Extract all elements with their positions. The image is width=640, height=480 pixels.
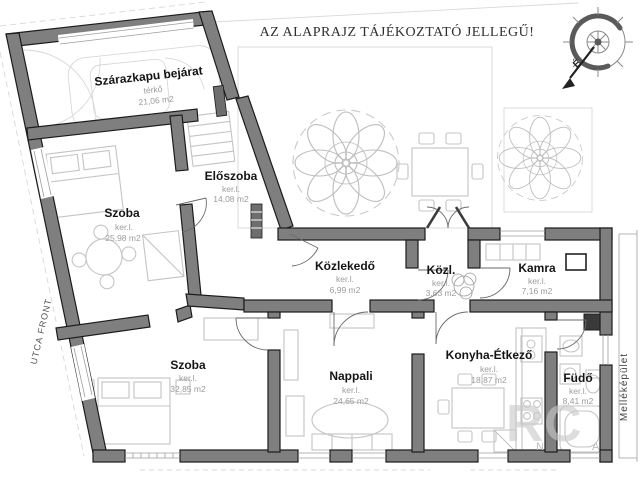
street-front-label: UTCA FRONT — [29, 297, 54, 365]
svg-text:ker.l.: ker.l. — [569, 386, 587, 396]
svg-text:Füdő: Füdő — [563, 371, 592, 385]
svg-text:Nappali: Nappali — [329, 369, 372, 383]
svg-text:8,41 m2: 8,41 m2 — [563, 396, 594, 406]
svg-text:Szoba: Szoba — [170, 358, 206, 372]
compass-rose — [562, 7, 633, 89]
svg-text:ker.l.: ker.l. — [115, 222, 133, 232]
room-label-kamra: Kamra ker.l. 7,16 m2 — [518, 261, 556, 296]
room-label-szarazkapu: Szárazkapu bejárat térkő 21,06 m2 — [94, 63, 206, 111]
svg-text:25,98 m2: 25,98 m2 — [105, 233, 141, 243]
tree-icon — [498, 116, 583, 201]
tree-icon — [293, 110, 399, 216]
bedroom2-furniture — [80, 318, 258, 444]
svg-text:Konyha-Étkező: Konyha-Étkező — [446, 347, 533, 362]
svg-text:Előszoba: Előszoba — [205, 169, 258, 183]
watermark-letter: A — [592, 441, 600, 453]
room-label-eloszoba: Előszoba ker.l. 14,08 m2 — [205, 169, 258, 204]
svg-text:Kamra: Kamra — [518, 261, 556, 275]
garden-dining-table — [397, 133, 483, 211]
svg-text:ker.l.: ker.l. — [336, 274, 354, 284]
plan-disclaimer-title: AZ ALAPRAJZ TÁJÉKOZTATÓ JELLEGŰ! — [260, 23, 535, 40]
svg-text:7,16 m2: 7,16 m2 — [522, 286, 553, 296]
svg-text:3,63 m2: 3,63 m2 — [426, 288, 457, 298]
pantry-shelf — [486, 244, 540, 260]
svg-text:18,87 m2: 18,87 m2 — [471, 375, 507, 385]
shaft-box — [566, 254, 586, 270]
svg-text:ker.l.: ker.l. — [342, 385, 360, 395]
chimney — [584, 314, 600, 330]
outbuilding-outline — [619, 230, 637, 462]
svg-text:Közl.: Közl. — [427, 263, 456, 277]
room-label-szoba2: Szoba ker.l. 32,85 m2 — [170, 358, 206, 394]
svg-text:14,08 m2: 14,08 m2 — [213, 194, 249, 204]
watermark-letter: N — [536, 441, 544, 453]
svg-text:ker.l.: ker.l. — [179, 373, 197, 383]
floor-plan-page: R C N A É AZ ALAPRAJZ TÁJÉKOZTATÓ JELLEG… — [0, 0, 640, 480]
room-label-szoba1: Szoba ker.l. 25,98 m2 — [104, 206, 141, 243]
svg-text:32,85 m2: 32,85 m2 — [170, 384, 206, 394]
svg-text:ker.l.: ker.l. — [222, 184, 240, 194]
svg-text:ker.l.: ker.l. — [480, 364, 498, 374]
floor-plan-svg: R C N A É AZ ALAPRAJZ TÁJÉKOZTATÓ JELLEG… — [0, 0, 640, 480]
svg-text:Szoba: Szoba — [104, 206, 140, 220]
svg-text:Közlekedő: Közlekedő — [315, 259, 375, 273]
room-label-nappali: Nappali ker.l. 24,65 m2 — [329, 369, 372, 406]
svg-text:ker.l.: ker.l. — [528, 276, 546, 286]
svg-text:6,99 m2: 6,99 m2 — [330, 285, 361, 295]
svg-text:24,65 m2: 24,65 m2 — [333, 396, 369, 406]
room-label-kozlekedo: Közlekedő ker.l. 6,99 m2 — [315, 259, 375, 295]
svg-text:térkő: térkő — [143, 84, 163, 96]
svg-text:ker.l.: ker.l. — [432, 278, 450, 288]
outbuilding-label: Melléképület — [619, 353, 630, 421]
room-label-fudo: Füdő ker.l. 8,41 m2 — [563, 371, 594, 406]
